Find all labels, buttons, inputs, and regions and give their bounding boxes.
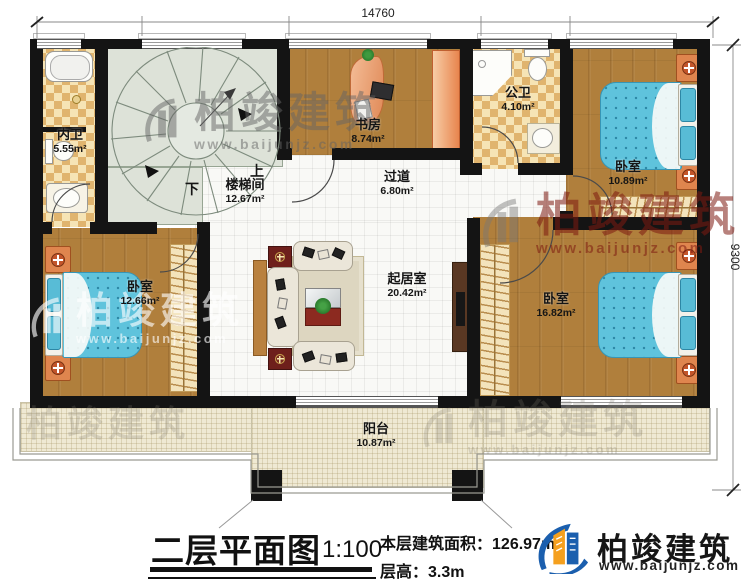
end-table: [268, 348, 292, 370]
nightstand-ornament-icon: [682, 61, 696, 75]
pillow: [680, 316, 696, 350]
shower-drain-icon: [478, 60, 486, 68]
floor-plan: 柏竣建筑 www.baijunjz.com 柏竣建筑 www.baijunjz.…: [0, 0, 750, 586]
towel-hook-icon: [72, 95, 81, 104]
balcony-column: [452, 470, 483, 501]
nightstand-ornament-icon: [682, 249, 696, 263]
pillow: [680, 88, 696, 122]
wall: [460, 49, 473, 163]
brand-site: www.baijunjz.com: [599, 558, 740, 573]
toilet-tank: [45, 139, 53, 164]
sink-basin: [532, 128, 553, 148]
window: [289, 39, 427, 49]
wall: [438, 396, 561, 408]
pillow: [47, 316, 61, 350]
window: [481, 39, 548, 49]
toilet-tank: [524, 49, 550, 57]
bed-sheet: [652, 273, 680, 357]
wall: [95, 49, 108, 222]
wall: [242, 39, 289, 49]
cushion: [275, 278, 286, 290]
nightstand-ornament-icon: [682, 169, 696, 183]
title-underline-thin: [148, 577, 376, 579]
wall: [332, 148, 470, 160]
wall: [30, 39, 37, 49]
cushion: [319, 354, 331, 365]
cushion: [335, 352, 347, 362]
lamp-icon: [275, 252, 285, 262]
bathtub-basin: [50, 55, 90, 80]
cushion: [277, 297, 288, 309]
nightstand: [45, 246, 71, 273]
wall: [673, 39, 710, 49]
wardrobe: [170, 244, 198, 392]
window: [570, 39, 673, 49]
wardrobe: [480, 244, 510, 396]
tv: [456, 292, 465, 326]
balcony-bay-floor: [251, 402, 484, 488]
window: [561, 396, 682, 408]
console-table: [253, 260, 267, 356]
wall: [467, 218, 480, 396]
toilet-bowl: [528, 57, 547, 81]
sink-basin: [53, 188, 80, 208]
dim-width-label: 14760: [350, 6, 406, 20]
window: [142, 39, 242, 49]
bookshelf: [432, 50, 460, 155]
wall: [30, 396, 296, 408]
wall: [90, 222, 157, 234]
floor-stairwell: [103, 45, 283, 167]
floor-height-label: 层高：: [380, 564, 428, 581]
balcony-column: [251, 470, 282, 501]
wall: [553, 217, 710, 230]
floor-height-value: 3.3m: [428, 564, 464, 581]
pillow: [47, 278, 61, 312]
wall: [427, 39, 481, 49]
pillow: [680, 126, 696, 160]
dim-height-label: 9300: [728, 232, 742, 282]
window: [37, 39, 81, 49]
nightstand-ornament-icon: [682, 363, 696, 377]
wall: [560, 49, 573, 175]
brand-logo-icon: [532, 520, 594, 574]
plan-title: 二层平面图: [151, 524, 321, 572]
bath-partition-wall: [38, 127, 86, 132]
sliding-door: [296, 396, 438, 408]
stair-down-label: 下: [185, 179, 199, 199]
plant-icon: [362, 49, 374, 61]
wall: [81, 39, 142, 49]
plan-scale: 1:100: [322, 536, 382, 564]
nightstand-ornament-icon: [51, 361, 65, 375]
wall: [548, 39, 570, 49]
nightstand-ornament-icon: [51, 253, 65, 267]
wall: [197, 222, 210, 396]
stair-up-label: 上: [250, 161, 264, 181]
end-table: [268, 246, 292, 268]
nightstand: [45, 354, 71, 381]
wall: [30, 222, 52, 234]
plant-icon: [315, 298, 331, 314]
lamp-icon: [275, 354, 285, 364]
wall: [460, 163, 482, 175]
title-underline: [150, 567, 372, 572]
wall: [682, 396, 710, 408]
pillow: [680, 278, 696, 312]
area-info-label: 本层建筑面积：: [380, 536, 492, 553]
wall: [277, 148, 292, 160]
toilet-bowl: [53, 141, 74, 161]
bed-sheet: [652, 83, 680, 169]
floor-height-info: 层高：3.3m: [380, 558, 464, 582]
wall: [277, 49, 290, 160]
